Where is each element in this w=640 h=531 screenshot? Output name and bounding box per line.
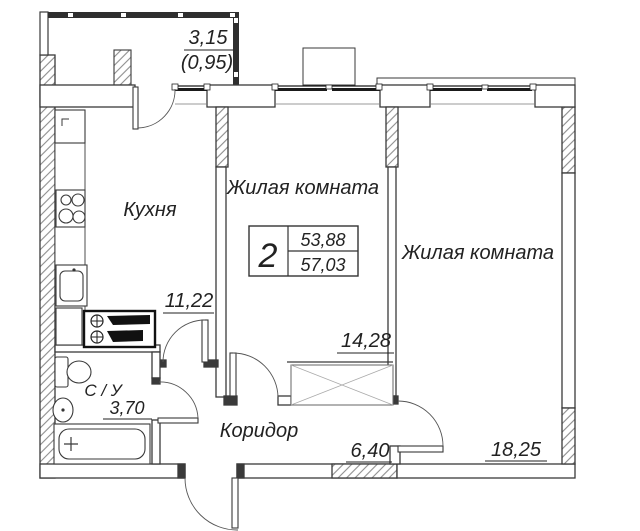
kitchen-label: Кухня: [123, 199, 177, 221]
balcony-door-leaf: [133, 87, 138, 129]
living1-door-swing: [233, 353, 278, 397]
living2-label: Жилая комната: [401, 242, 554, 264]
wall-bottom-hatched: [332, 464, 397, 478]
bathroom-door-jamb-top: [152, 378, 160, 384]
wall-bottom-right: [397, 464, 575, 478]
living1-door-stub: [278, 396, 291, 405]
balcony-pier: [114, 50, 131, 85]
rooms-count: 2: [258, 237, 278, 275]
total-area-value: 57,03: [300, 255, 345, 275]
entrance-jamb-right: [237, 464, 244, 478]
balcony-door: [133, 87, 175, 129]
doors: [158, 320, 443, 530]
living1-label: Жилая комната: [226, 177, 379, 199]
kitchen-cabinet: [56, 308, 82, 345]
balcony-glazing-top: [48, 12, 239, 18]
wall-bathroom-right-bottom: [152, 420, 160, 464]
wall-right-pier-bottom: [562, 408, 575, 464]
corridor-area-label: 6,40: [351, 440, 390, 462]
closet: [287, 362, 393, 405]
balcony-width-label: 3,15: [189, 27, 229, 49]
living2-door-swing: [398, 401, 443, 446]
pier-living1-living2: [380, 85, 430, 107]
toilet-tank: [55, 357, 68, 387]
living1-door-jamb: [224, 396, 237, 405]
bathroom-door-leaf: [158, 418, 198, 423]
living1-area-label: 14,28: [341, 330, 391, 352]
wall-right-middle: [562, 173, 575, 408]
wall-right-pier-top: [562, 107, 575, 173]
kitchen-door-leaf: [202, 320, 208, 362]
wall-top-right: [535, 85, 575, 107]
living2-door-leaf: [398, 446, 443, 452]
fridge: [55, 110, 85, 143]
kitchen-sink-tap: [72, 268, 75, 271]
kitchen-area-label: 11,22: [165, 290, 214, 312]
balcony-left-wall: [40, 12, 48, 55]
wall-left: [40, 55, 55, 478]
entrance-door-leaf: [232, 478, 238, 528]
pier-hatched-kitchen: [216, 107, 228, 167]
entrance-door-swing: [185, 478, 238, 530]
type-box: 2 53,88 57,03: [249, 226, 358, 276]
pier-kitchen-living1: [207, 85, 275, 107]
bathroom-door-swing: [159, 382, 198, 418]
kitchen-door-swing: [163, 320, 205, 362]
kitchen-fixtures: [55, 110, 155, 347]
living1-door-leaf: [230, 353, 236, 396]
radiator-bar: [107, 315, 150, 325]
bathroom-area-label: 3,70: [109, 398, 144, 418]
wall-top-kitchen: [40, 85, 135, 107]
toilet-bowl: [67, 361, 91, 383]
wall-bathroom-right-top: [152, 352, 160, 378]
entrance-jamb-left: [178, 464, 185, 478]
living-area-value: 53,88: [300, 230, 345, 250]
facade-line: [377, 78, 575, 85]
corridor-label: Коридор: [220, 420, 298, 442]
pier-hatched-living: [386, 107, 398, 167]
living2-area-label: 18,25: [491, 439, 542, 461]
wall-bottom-left: [40, 464, 185, 478]
radiator-bar: [107, 330, 143, 342]
upper-balcony-outline: [303, 48, 355, 85]
balcony-area-label: (0,95): [181, 52, 233, 74]
floor-plan-drawing: 2 53,88 57,03 3,15 (0,95) Кухня 11,22 Жи…: [0, 0, 640, 531]
balcony-door-swing: [138, 89, 175, 128]
floor-plan: 2 53,88 57,03 3,15 (0,95) Кухня 11,22 Жи…: [0, 0, 640, 531]
washbasin-tap: [61, 408, 64, 411]
